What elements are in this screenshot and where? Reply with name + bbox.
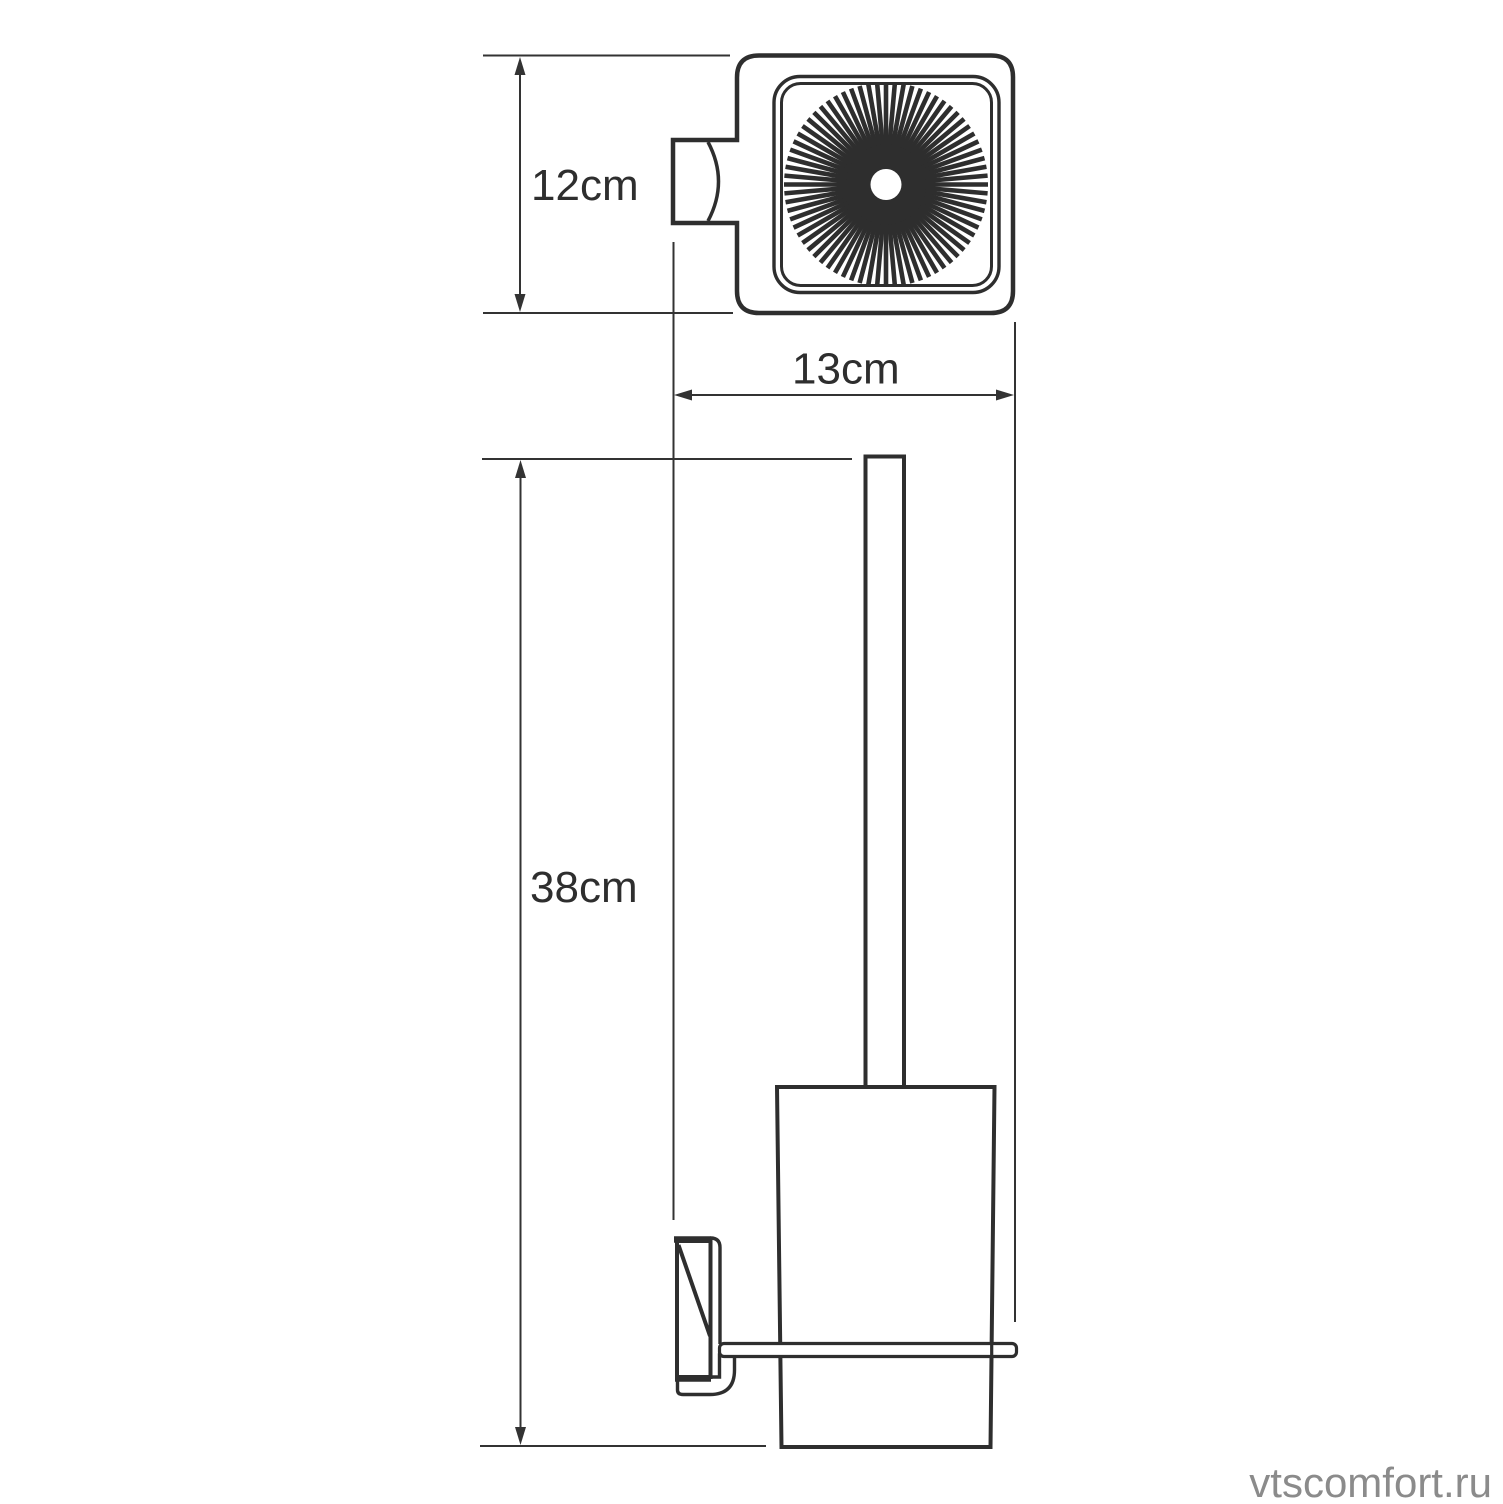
brush-starburst bbox=[784, 83, 988, 287]
top-view bbox=[673, 56, 1013, 314]
dim-label-12cm: 12cm bbox=[531, 161, 639, 210]
front-view bbox=[674, 457, 1017, 1448]
watermark: vtscomfort.ru bbox=[1249, 1459, 1492, 1504]
arrowhead-up bbox=[515, 460, 526, 478]
arrowhead-down bbox=[515, 1427, 526, 1445]
bracket-plate bbox=[677, 1241, 711, 1377]
arrowhead-left bbox=[674, 390, 692, 401]
holder-arm bbox=[720, 1344, 1017, 1357]
handle-cross-section bbox=[871, 169, 902, 200]
arrowhead-right bbox=[996, 390, 1014, 401]
dim-label-13cm: 13cm bbox=[792, 345, 900, 394]
brush-handle bbox=[866, 457, 905, 1088]
glass-cup bbox=[777, 1087, 995, 1447]
technical-drawing-canvas: 12cm 13cm 38cm vtscomfort.ru bbox=[0, 0, 1503, 1504]
dim-label-38cm: 38cm bbox=[530, 863, 638, 912]
arrowhead-down bbox=[515, 294, 526, 312]
arrowhead-up bbox=[515, 57, 526, 75]
